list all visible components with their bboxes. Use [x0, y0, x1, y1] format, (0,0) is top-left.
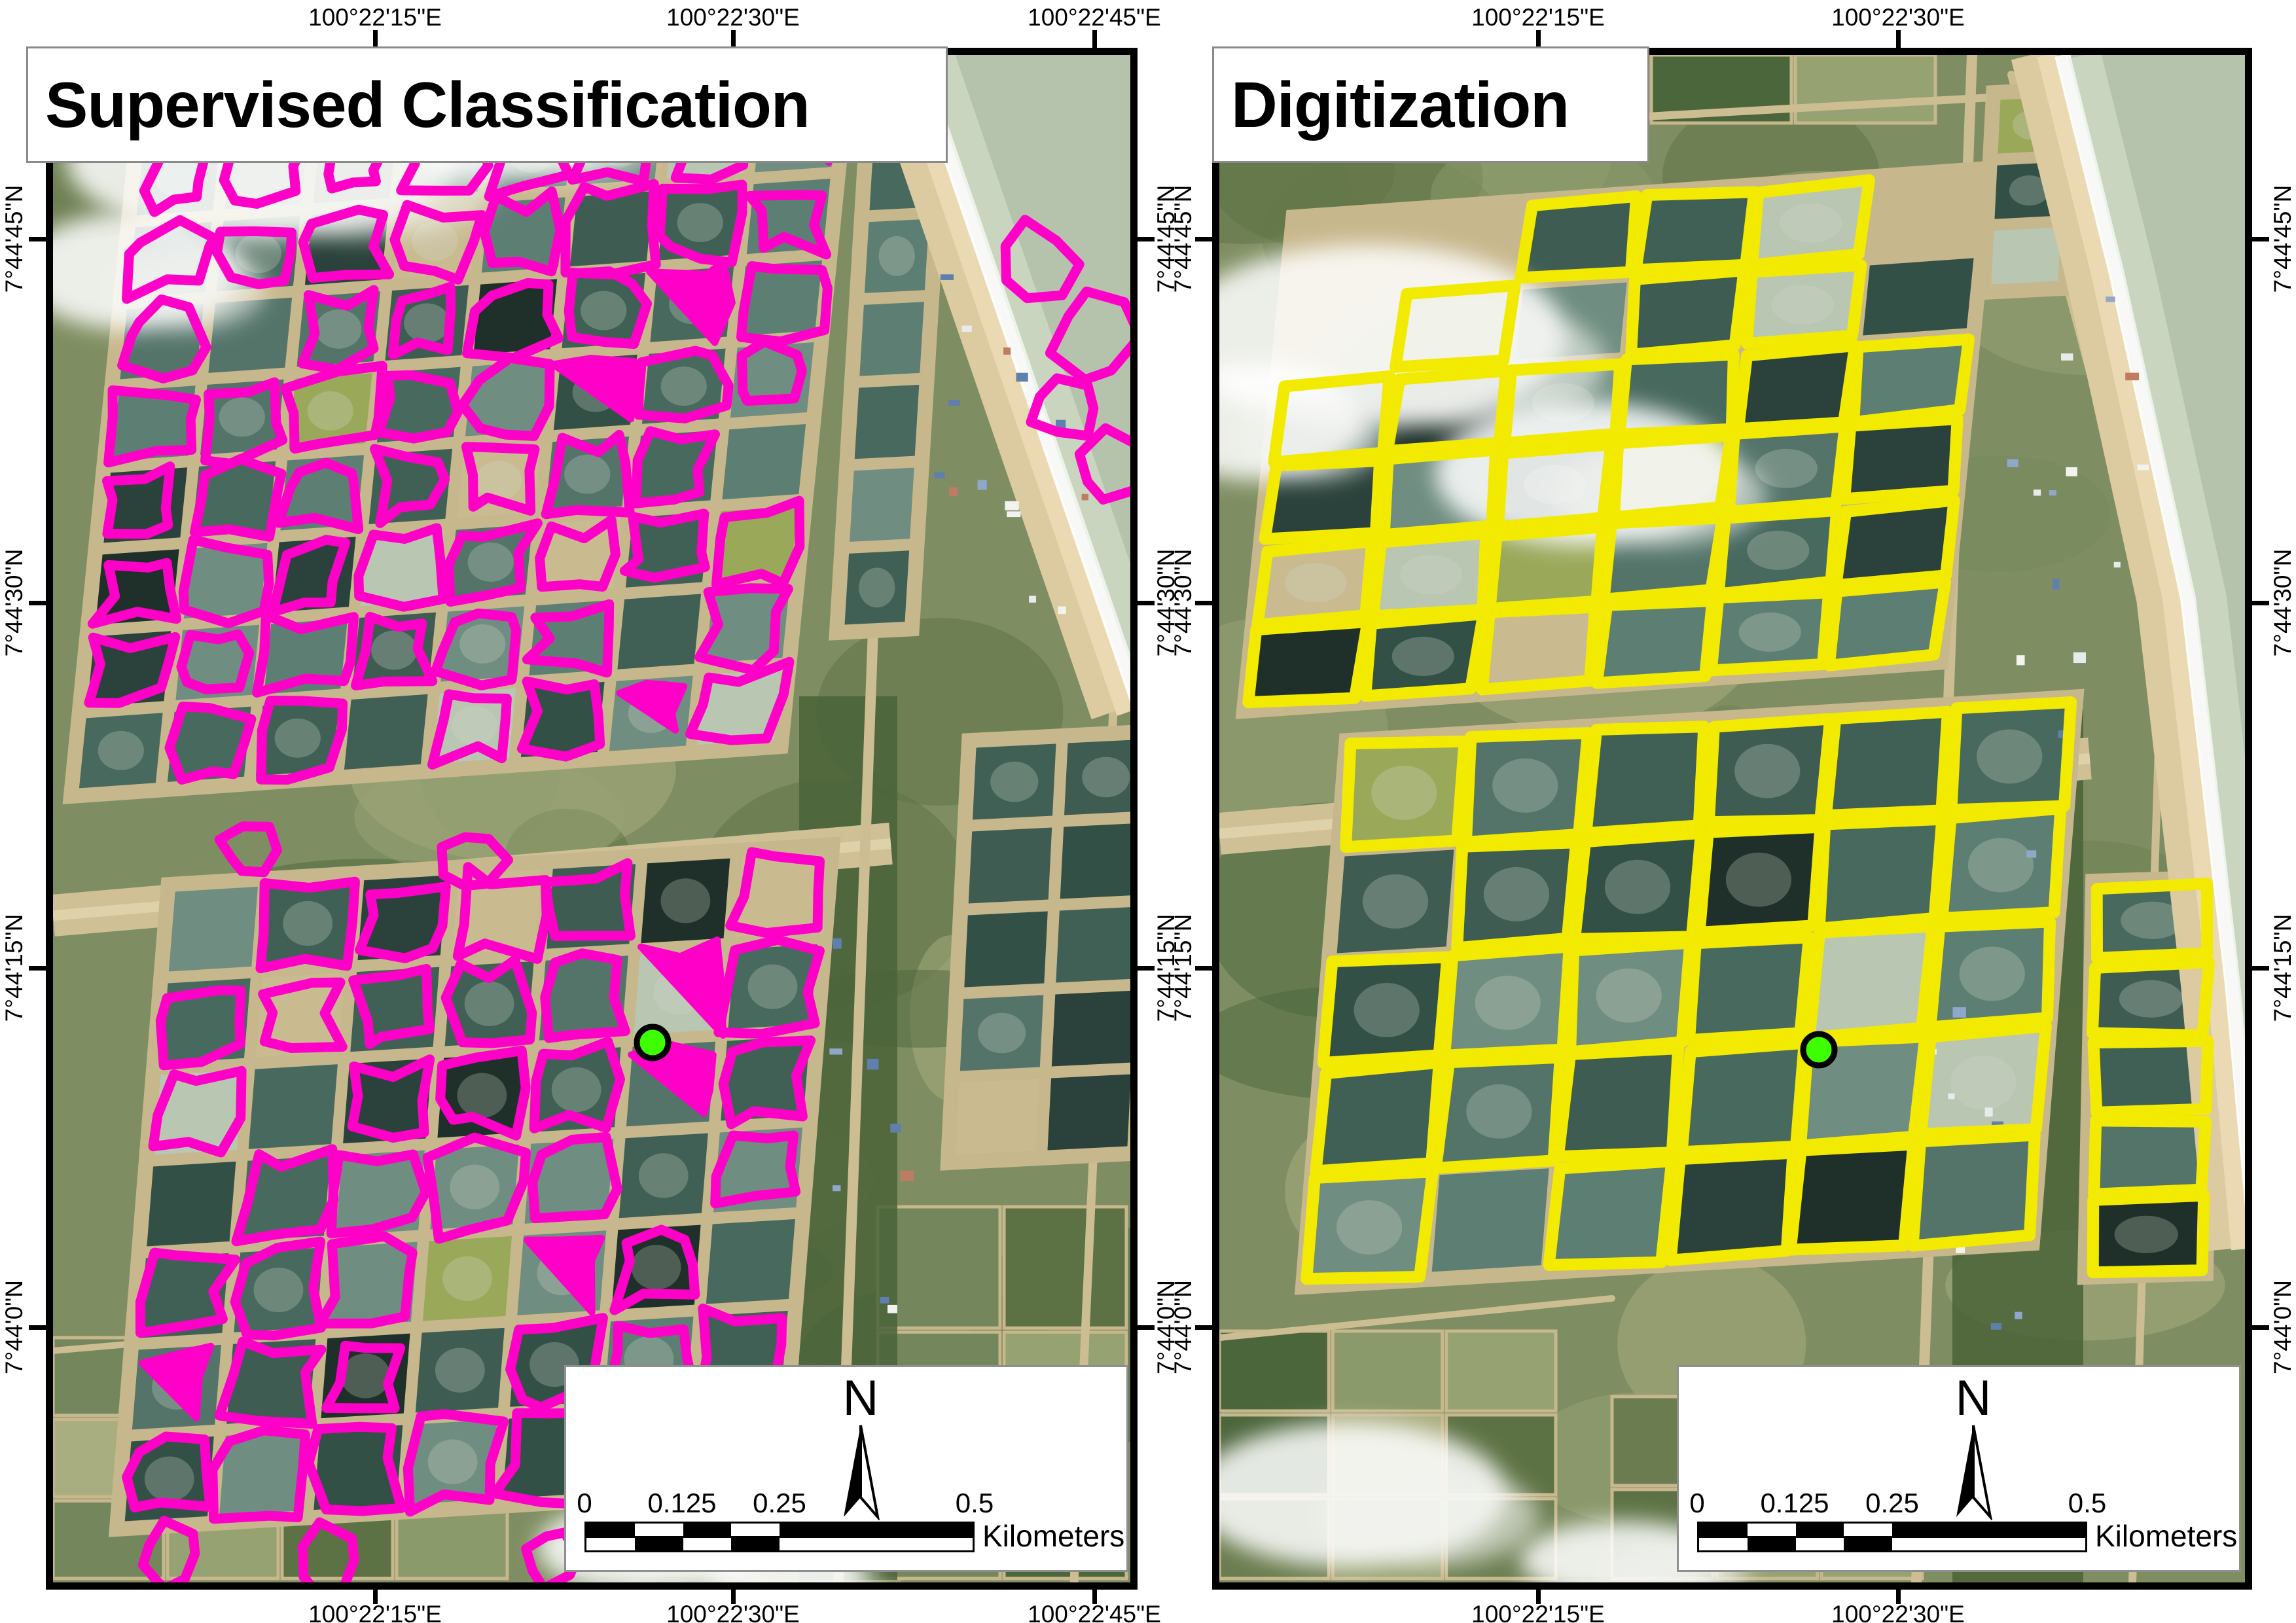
- panel-title-digitization: Digitization: [1212, 46, 1649, 163]
- lat-tick: [1195, 237, 1212, 241]
- scale-tick-0: 0: [1651, 1488, 1743, 1519]
- lat-label: 7°44'0"N: [3, 1252, 26, 1402]
- reference-point-marker: [1803, 1034, 1835, 1065]
- scalebar-box-left: N 0 0.125 0.25 0.5 Kilometers: [564, 1365, 1128, 1572]
- lat-tick: [1195, 966, 1212, 971]
- lat-tick: [29, 1325, 46, 1330]
- scale-tick-25: 0.25: [734, 1488, 825, 1519]
- scale-bar: [584, 1522, 975, 1552]
- lon-label-top: 100°22'30"E: [666, 4, 800, 31]
- lon-tick-top: [1896, 30, 1901, 48]
- scale-tick-5: 0.5: [2041, 1488, 2133, 1519]
- lon-tick-top: [1092, 30, 1097, 48]
- north-arrow-icon: [821, 1422, 900, 1520]
- lat-tick: [1195, 1325, 1212, 1330]
- lat-label: 7°44'30"N: [1172, 527, 1195, 678]
- lon-tick-top: [1536, 30, 1541, 48]
- lat-tick: [2252, 1325, 2269, 1330]
- north-label: N: [1921, 1370, 2026, 1427]
- lat-label: 7°44'45"N: [1172, 164, 1195, 314]
- scale-tick-125: 0.125: [1749, 1488, 1840, 1519]
- lat-label: 7°44'15"N: [3, 893, 26, 1043]
- lat-tick: [29, 966, 46, 971]
- scale-tick-0: 0: [539, 1488, 630, 1519]
- scale-tick-5: 0.5: [929, 1488, 1020, 1519]
- lon-label-bottom: 100°22'30"E: [666, 1601, 800, 1623]
- north-arrow-icon: [1934, 1422, 2013, 1520]
- lon-label-bottom: 100°22'15"E: [308, 1601, 442, 1623]
- lat-tick: [2252, 966, 2269, 971]
- lon-tick-top: [373, 30, 378, 48]
- satellite-map-digitization: [1219, 55, 2245, 1582]
- scalebar-box-right: N 0 0.125 0.25 0.5 Kilometers: [1677, 1365, 2241, 1572]
- scale-unit: Kilometers: [982, 1519, 1124, 1553]
- lon-label-top: 100°22'45"E: [1028, 4, 1161, 31]
- lat-label: 7°44'45"N: [3, 164, 26, 314]
- lat-tick: [2252, 237, 2269, 241]
- lat-label: 7°44'45"N: [2271, 164, 2295, 314]
- lon-label-top: 100°22'15"E: [308, 4, 442, 31]
- map-comparison-figure: Supervised Classification Digitization N…: [0, 0, 2296, 1623]
- lon-label-bottom: 100°22'30"E: [1831, 1601, 1965, 1623]
- lat-label: 7°44'15"N: [1172, 893, 1195, 1043]
- north-label: N: [808, 1370, 913, 1427]
- panel-title-text: Supervised Classification: [45, 68, 810, 142]
- lon-label-top: 100°22'15"E: [1471, 4, 1605, 31]
- panel-title-text: Digitization: [1231, 68, 1569, 142]
- lat-label: 7°44'30"N: [3, 527, 26, 678]
- lat-label: 7°44'15"N: [2271, 893, 2295, 1043]
- lon-label-bottom: 100°22'45"E: [1028, 1601, 1161, 1623]
- lat-tick: [1195, 601, 1212, 605]
- scale-tick-25: 0.25: [1846, 1488, 1938, 1519]
- satellite-map-supervised: [53, 55, 1130, 1582]
- scale-tick-125: 0.125: [636, 1488, 728, 1519]
- reference-point-marker: [637, 1027, 668, 1058]
- lon-label-top: 100°22'30"E: [1831, 4, 1965, 31]
- lat-tick: [2252, 601, 2269, 605]
- scale-unit: Kilometers: [2095, 1519, 2237, 1553]
- lon-label-bottom: 100°22'15"E: [1471, 1601, 1605, 1623]
- panel-title-supervised: Supervised Classification: [26, 46, 948, 163]
- lat-tick: [29, 237, 46, 241]
- scale-bar: [1697, 1522, 2087, 1552]
- lat-label: 7°44'30"N: [2271, 527, 2295, 678]
- lon-tick-top: [731, 30, 736, 48]
- lat-label: 7°44'0"N: [1172, 1252, 1195, 1402]
- lat-tick: [29, 601, 46, 605]
- lat-label: 7°44'0"N: [2271, 1252, 2295, 1402]
